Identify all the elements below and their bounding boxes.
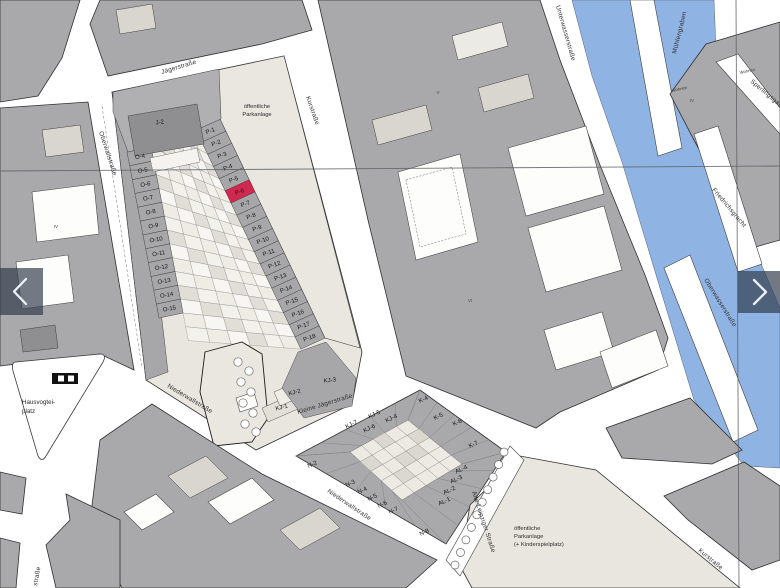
tree-icon [451, 561, 459, 569]
parcel-cell [183, 313, 207, 329]
roman-numeral: VI [468, 298, 472, 303]
building [0, 472, 26, 514]
building-courtyard [32, 184, 99, 242]
map-viewer: KJ-7KJ-6KJ-5KJ-4K-4K-5K-6K-7N-2N-3N-4N-5… [0, 0, 780, 588]
roman-numeral: IV [54, 224, 58, 229]
tree-icon [467, 523, 475, 531]
hausvogteiplatz-label-2: platz [22, 408, 35, 415]
tree-icon [245, 367, 253, 375]
tree-icon [234, 358, 242, 366]
building [42, 125, 84, 157]
tree-icon [500, 448, 508, 456]
tree-icon [249, 409, 257, 417]
park-playground-label-1: öffentliche [514, 526, 540, 532]
tree-icon [457, 549, 465, 557]
tree-icon [241, 420, 249, 428]
chevron-right-icon [738, 271, 780, 313]
tree-icon [252, 428, 260, 436]
map-canvas: KJ-7KJ-6KJ-5KJ-4K-4K-5K-6K-7N-2N-3N-4N-5… [0, 0, 780, 588]
parcel-cell [186, 327, 210, 342]
tree-icon [462, 536, 470, 544]
roman-numeral: IV [690, 98, 694, 103]
building [0, 538, 20, 588]
tree-icon [237, 378, 245, 386]
tree-icon [247, 388, 255, 396]
next-map-button[interactable] [738, 271, 780, 313]
prev-map-button[interactable] [0, 268, 43, 315]
park-playground-label-2: Parkanlage [514, 534, 543, 540]
chevron-left-icon [0, 268, 43, 315]
parcel-label-J-2: J-2 [155, 119, 165, 126]
park-strip-label-2: Parkanlage [242, 112, 271, 118]
hausvogteiplatz-label-1: Hausvogtei- [22, 399, 55, 406]
plaza-monument [52, 373, 78, 384]
tree-icon [489, 473, 497, 481]
tree-icon [239, 399, 247, 407]
tree-icon [495, 461, 503, 469]
tree-icon [484, 486, 492, 494]
building [20, 325, 58, 352]
roman-numeral: V [437, 90, 440, 95]
park-playground-label-3: (+ Kinderspielplatz) [514, 542, 564, 548]
park-strip-label-1: öffentliche [244, 104, 270, 110]
